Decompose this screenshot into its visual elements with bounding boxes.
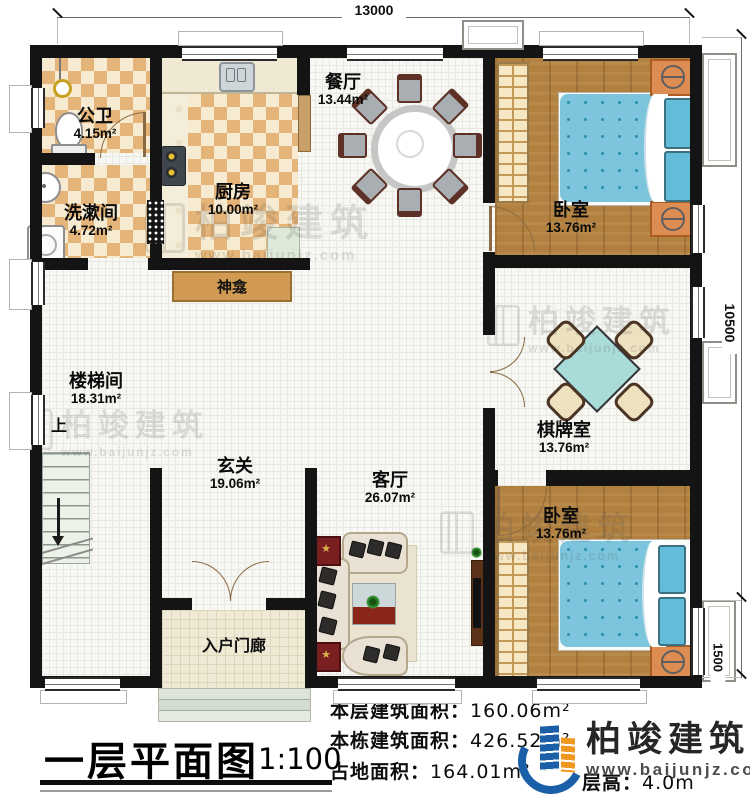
door-leaf-bedroom-top [489,206,492,251]
window-bedroom1-right [691,205,705,253]
floor-plan-canvas: 13000 10500 1500 柏竣建筑 www.baijunjz.com 柏… [0,0,750,802]
wall-center-vertical-b [483,252,495,335]
lamp-cord [59,58,61,81]
sofa-chaise [342,636,408,676]
nightstand [650,201,695,237]
window-sill [539,31,644,46]
title-underline-thin [40,790,332,792]
window-hall-left-lower [31,395,45,445]
window-kitchen-top [182,46,277,61]
wardrobe-bedroom-top [497,62,529,203]
dining-chair [397,74,422,103]
room-label-gameroom: 棋牌室13.76m² [523,420,605,455]
bed-top-blanket [560,94,656,202]
wall-washroom-bottom [42,258,88,270]
room-label-bedroom-top: 卧室13.76m² [533,200,609,235]
door-leaf-bedroom-bottom [497,487,500,535]
flue-shaft [147,200,164,244]
nightstand [650,645,695,680]
room-label-washroom: 洗漱间4.72m² [51,203,131,238]
dimension-top: 13000 [342,2,406,18]
window-dining-top [347,46,443,61]
room-label-bathroom: 公卫4.15m² [60,106,130,141]
dining-table-center [396,130,424,158]
stat-land-area: 占地面积：164.01m² [330,757,531,784]
brand-name: 柏竣建筑 [586,722,750,757]
title-underline [40,780,332,785]
extension-line [57,18,58,44]
bay-window-top [462,20,524,50]
room-label-kitchen: 厨房10.00m² [193,182,273,217]
wall-entry-right-stub [266,598,305,610]
window-livingroom-bottom [338,677,455,691]
window-bathroom-left [31,88,45,128]
room-label-foyer: 玄关19.06m² [194,456,276,491]
wall-gameroom-bottom-a [483,470,498,486]
room-label-bedroom-bottom: 卧室13.76m² [523,506,599,541]
dining-chair [453,133,482,158]
window-bedroom2-bottom [537,677,640,691]
pillow [664,98,692,149]
sink-basin-right [237,68,246,82]
bed-bottom-blanket [560,541,654,647]
wall-center-vertical-c [483,408,495,688]
window-sill [9,392,32,450]
window-sill [9,85,32,133]
extension-line [702,600,742,601]
wall-gameroom-bottom-b [546,470,700,486]
stairs-arrow-icon [52,536,64,546]
dimension-line-right [741,37,742,600]
brand-logo: 柏竣建筑 www.baijunjz.com [518,722,750,786]
stove-burner [166,167,177,178]
pillow [658,597,686,646]
room-label-dining: 餐厅13.44m² [306,72,380,107]
window-sill [333,690,462,704]
plan-title: 一层平面图 [44,729,259,787]
wardrobe-bedroom-bottom [497,539,529,680]
room-label-stairwell: 楼梯间18.31m² [55,371,137,406]
staircase [42,452,90,564]
window-bedroom1-top [543,46,638,61]
stove-burner [166,151,177,162]
wall-entry-left-stub [162,598,192,610]
extension-line [689,18,690,44]
stairs-up-label: 上 [48,418,70,436]
ceiling-lamp-icon [53,79,72,98]
plant-icon [366,595,380,609]
brand-url: www.baijunjz.com [586,760,750,780]
wall-porch-right [305,468,317,688]
wall-center-vertical-a [483,45,495,203]
extension-line [702,37,742,38]
window-gameroom-right [691,287,705,338]
washbasin-drain [42,184,46,188]
dimension-right: 10500 [722,292,738,354]
plan-scale: 1:100 [258,742,342,776]
sink-basin-left [226,68,235,82]
wall-bedroom1-bottom [495,255,690,268]
window-sill [532,690,647,704]
tv-icon [473,578,481,628]
shrine-label: 神龛 [217,276,247,297]
porch-steps [158,688,311,722]
fridge-icon [267,227,300,260]
window-sill [40,690,127,704]
nightstand [650,59,695,96]
window-sill [9,259,32,310]
dining-chair [338,133,367,158]
pillow [664,151,692,202]
room-label-porch: 入户门廊 [179,638,289,656]
wall-porch-left [150,468,162,688]
bay-window-right-upper [702,53,737,167]
dining-chair [397,188,422,217]
window-bedroom2-right [691,608,705,675]
dimension-right-lower: 1500 [711,630,726,686]
wall-left [30,45,42,688]
sofa-top [342,532,408,574]
plant-small-icon [471,547,482,558]
window-hall-left-upper [31,262,45,305]
shrine-cabinet: 神龛 [172,271,292,302]
door-leaf-bathroom [143,112,146,157]
pillow [658,545,686,594]
wall-bath-divider [42,153,95,165]
window-sill [178,31,283,46]
stairs-direction-line [57,498,60,538]
room-label-livingroom: 客厅26.07m² [350,470,430,505]
dimension-line-right-lower [741,600,742,678]
window-bottom-left [45,677,120,691]
wall-kitchen-bottom [148,258,310,270]
wall-right [690,45,702,688]
brand-logo-icon [518,722,578,786]
